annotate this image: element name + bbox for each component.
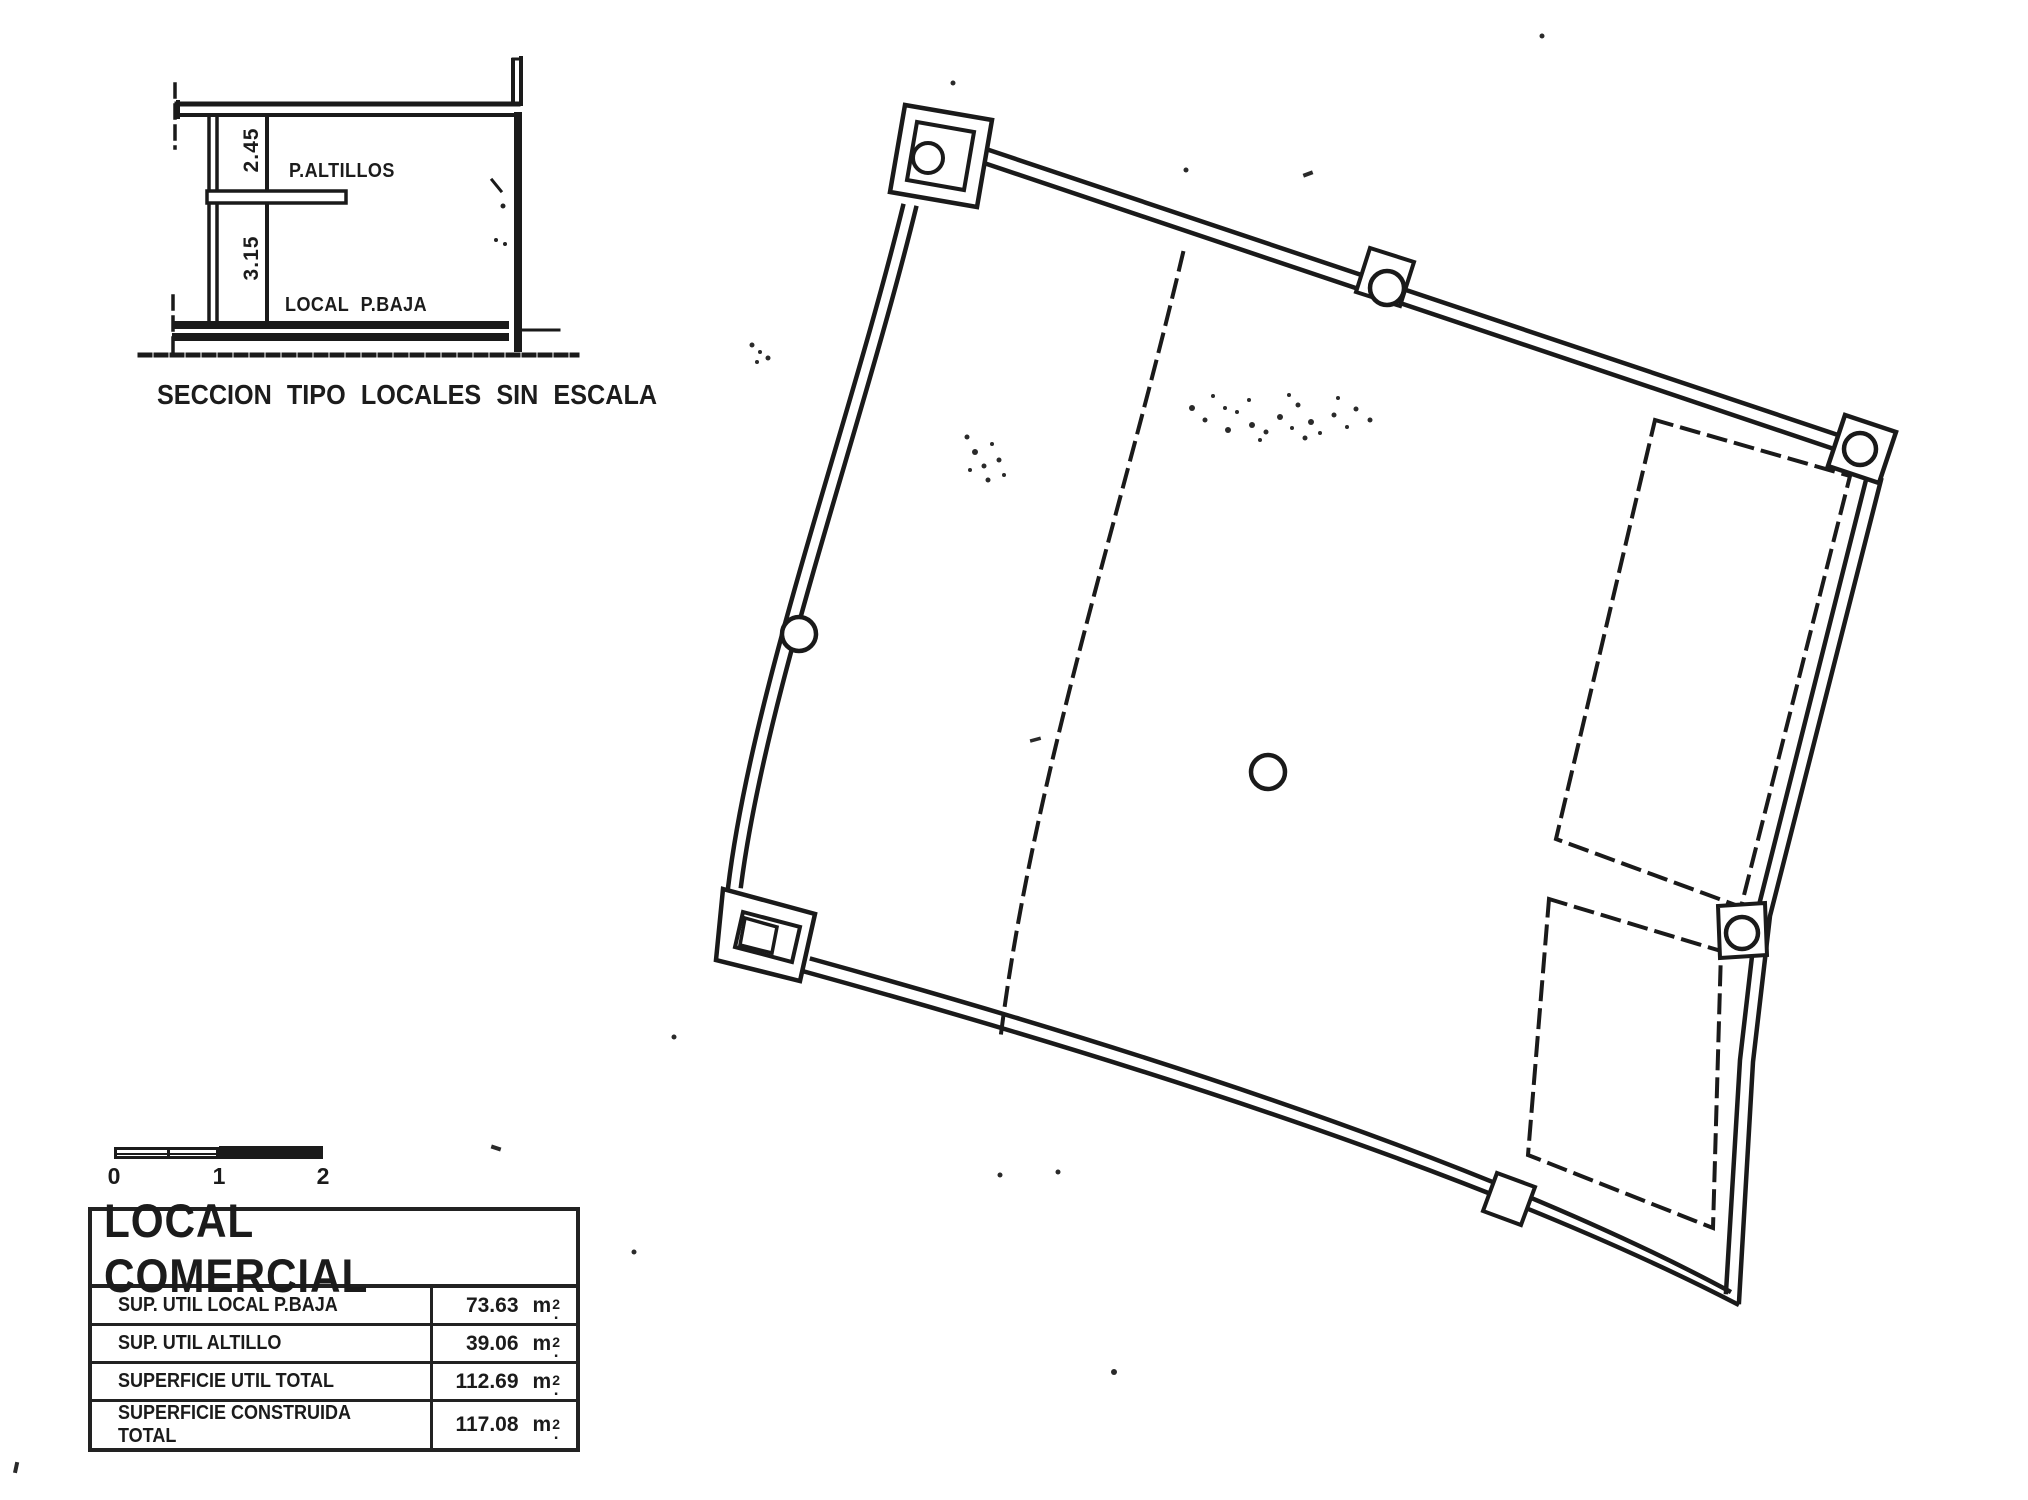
scale-label-2: 2 <box>317 1163 330 1190</box>
column-leftwall-icon <box>782 617 816 651</box>
table-title: LOCAL COMERCIAL <box>92 1211 576 1288</box>
scale-bar-solid-segment <box>219 1146 323 1159</box>
table-row: SUP. UTIL ALTILLO 39.06 m2. <box>92 1326 576 1364</box>
section-right-wall <box>514 112 522 352</box>
table-row: SUPERFICIE UTIL TOTAL 112.69 m2. <box>92 1364 576 1402</box>
unit-m2: m2. <box>533 1332 560 1356</box>
row-label: SUPERFICIE CONSTRUIDA TOTAL <box>92 1402 430 1448</box>
summary-table: LOCAL COMERCIAL SUP. UTIL LOCAL P.BAJA 7… <box>88 1207 580 1452</box>
section-caption: SECCION TIPO LOCALES SIN ESCALA <box>157 379 713 411</box>
scale-label-1: 1 <box>213 1163 226 1190</box>
scale-label-0: 0 <box>108 1163 121 1190</box>
row-value: 112.69 m2. <box>430 1364 576 1399</box>
row-value: 39.06 m2. <box>430 1326 576 1361</box>
bottom-wall-inner <box>812 959 1729 1291</box>
central-dashed-partition <box>1000 253 1183 1042</box>
stair-recess <box>716 889 815 981</box>
row-value: 117.08 m2. <box>430 1402 576 1448</box>
column-topleft-icon <box>913 143 943 173</box>
table-row: SUPERFICIE CONSTRUIDA TOTAL 117.08 m2. <box>92 1402 576 1448</box>
scale-bar: 0 1 2 <box>100 1140 350 1200</box>
unit-m2: m2. <box>533 1294 560 1318</box>
section-dim-upper: 2.45 <box>240 128 264 173</box>
left-wall-inner <box>741 208 916 886</box>
scale-bar-open-segment <box>114 1147 219 1159</box>
upper-dashed-area <box>1556 420 1850 907</box>
bottom-wall-outer <box>806 972 1737 1304</box>
row-label: SUPERFICIE UTIL TOTAL <box>92 1364 430 1399</box>
column-topwall-icon <box>1370 271 1404 305</box>
column-center-icon <box>1251 755 1285 789</box>
section-dim-lower: 3.15 <box>240 236 264 281</box>
label-altillos: P.ALTILLOS <box>289 160 407 183</box>
scanned-plan-page: 2.45 3.15 P.ALTILLOS LOCAL P.BAJA SECCIO… <box>0 0 2028 1500</box>
top-wall-outer <box>980 147 1847 438</box>
label-local-pbaja: LOCAL P.BAJA <box>285 294 443 317</box>
column-right-icon <box>1726 917 1758 949</box>
left-wall-outer <box>728 206 903 888</box>
scale-bar-divider <box>167 1150 170 1156</box>
column-topright-icon <box>1844 433 1876 465</box>
floor-plan <box>716 105 1896 1304</box>
unit-m2: m2. <box>533 1413 560 1437</box>
row-label: SUP. UTIL ALTILLO <box>92 1326 430 1361</box>
lower-dashed-area <box>1528 899 1721 1228</box>
top-wall-inner <box>978 161 1843 452</box>
unit-m2: m2. <box>533 1370 560 1394</box>
altillo-slab <box>207 191 346 203</box>
